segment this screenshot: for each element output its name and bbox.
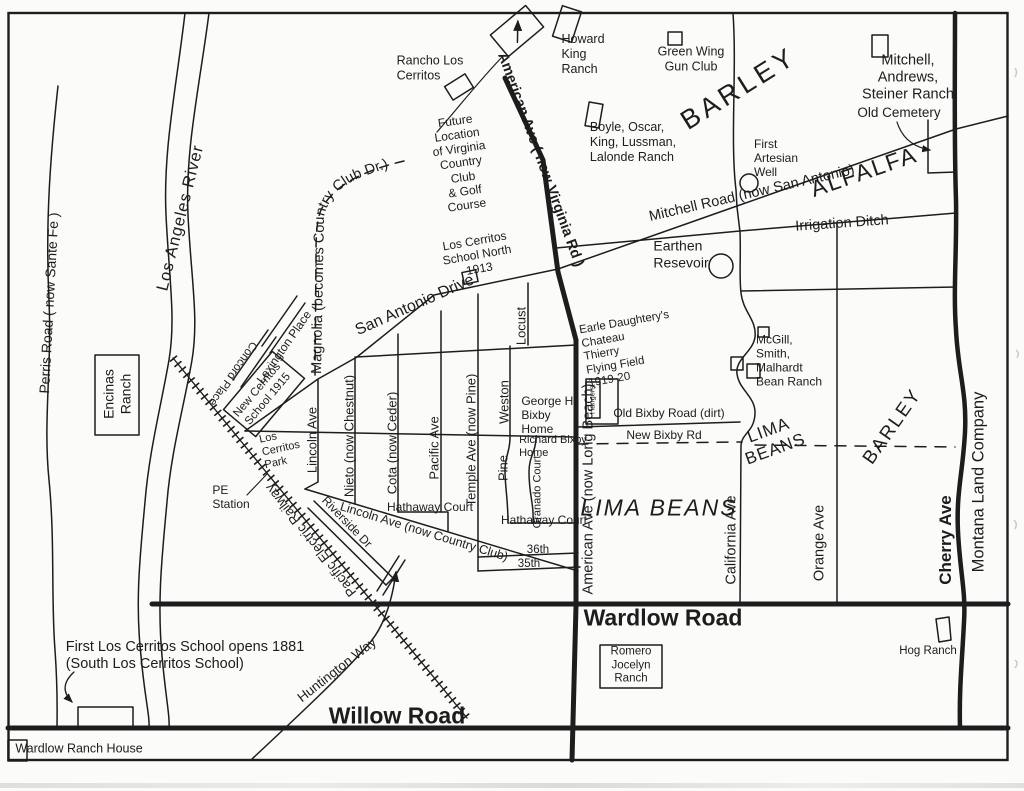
- label-lincoln-ave: Lincoln Ave: [304, 407, 319, 473]
- label-pacific-ave: Pacific Ave: [426, 416, 441, 479]
- green-wing-box: [668, 32, 682, 45]
- label-romero-ranch: Romero Jocelyn Ranch: [611, 646, 652, 687]
- label-richard-bixby-home: Richard Bixby Home: [519, 434, 587, 460]
- label-george-bixby-home: George H. Bixby Home: [521, 394, 576, 436]
- block-boundary-line: [741, 287, 956, 291]
- scan-mark: [1015, 68, 1017, 77]
- label-green-wing: Green Wing Gun Club: [658, 44, 725, 74]
- label-encinas-ranch: Encinas Ranch: [100, 369, 133, 419]
- label-california-ave: California Ave: [723, 495, 740, 584]
- label-first-artesian-well: First Artesian Well: [754, 137, 798, 179]
- grid-top-line: [356, 345, 576, 357]
- earthen-resevoir-circle: [709, 254, 733, 278]
- label-new-bixby-road: New Bixby Rd: [626, 428, 701, 442]
- scan-mark: [1015, 660, 1017, 668]
- label-nieto: Nieto (now Chestnut): [341, 375, 356, 497]
- weston-pine-line: [505, 346, 510, 523]
- label-earthen-resevoir: Earthen Resevoir: [653, 237, 708, 270]
- label-mcgill-ranch: McGill, Smith, Malhardt Bean Ranch: [756, 333, 822, 390]
- label-35th: 35th: [518, 558, 540, 572]
- label-locust: Locust: [513, 307, 528, 345]
- label-weston: Weston: [496, 380, 511, 424]
- label-pine: Pine: [495, 455, 510, 481]
- label-magnolia: Magnolia (becomes Country Club Dr.): [309, 156, 390, 374]
- label-pe-station: PE Station: [212, 483, 249, 511]
- label-hathaway-court-east: Hathaway Court: [501, 513, 587, 527]
- old-cemetery-plot: [928, 120, 956, 173]
- scan-mark: [1014, 520, 1016, 529]
- label-los-cerritos-park: Los Cerritos Park: [258, 426, 304, 472]
- cherry-ave-line: [955, 13, 966, 728]
- label-hog-ranch: Hog Ranch: [899, 645, 957, 659]
- label-mitchell-andrews-ranch: Mitchell, Andrews, Steiner Ranch: [850, 52, 966, 103]
- label-wardlow-ranch-house: Wardlow Ranch House: [15, 742, 142, 757]
- scan-mark: [1016, 350, 1018, 358]
- label-wardlow-road: Wardlow Road: [584, 604, 743, 631]
- label-howard-king-ranch: Howard King Ranch: [561, 32, 604, 76]
- label-temple-ave: Temple Ave (now Pine): [463, 374, 478, 507]
- first-school-box: [78, 707, 133, 728]
- label-first-school: First Los Cerritos School opens 1881 (So…: [66, 639, 305, 673]
- label-willow-road: Willow Road: [329, 702, 466, 729]
- label-hathaway-court-west: Hathaway Court: [387, 500, 473, 514]
- label-boyle-ranch: Boyle, Oscar, King, Lussman, Lalonde Ran…: [590, 120, 676, 164]
- label-rancho-los-cerritos: Rancho Los Cerritos: [397, 53, 464, 83]
- new-bixby-road-line-west: [577, 442, 742, 444]
- label-old-cemetery: Old Cemetery: [857, 105, 940, 121]
- hog-ranch-box: [936, 617, 951, 642]
- scan-smudge: [0, 783, 1024, 788]
- irrigation-ditch-line: [556, 213, 956, 248]
- label-cota: Cota (now Ceder): [384, 392, 399, 495]
- label-old-bixby-road: Old Bixby Road (dirt): [613, 406, 724, 420]
- la-river-west-bank: [138, 13, 185, 729]
- perris-road-line: [47, 86, 58, 729]
- label-36th: 36th: [527, 544, 549, 558]
- historical-map: Magnolia (becomes Country Club Dr.) Los …: [0, 0, 1024, 791]
- label-orange-ave: Orange Ave: [811, 505, 828, 581]
- label-lima-beans-large: LIMA BEANS: [580, 494, 737, 521]
- label-american-ave-long-beach: American Ave (now Long Beach): [580, 384, 597, 595]
- direction-arrow-icon: [507, 21, 528, 42]
- label-montana-land-company: Montana Land Company: [969, 392, 988, 573]
- label-cherry-ave: Cherry Ave: [936, 495, 956, 584]
- first-school-arrow: [65, 672, 74, 702]
